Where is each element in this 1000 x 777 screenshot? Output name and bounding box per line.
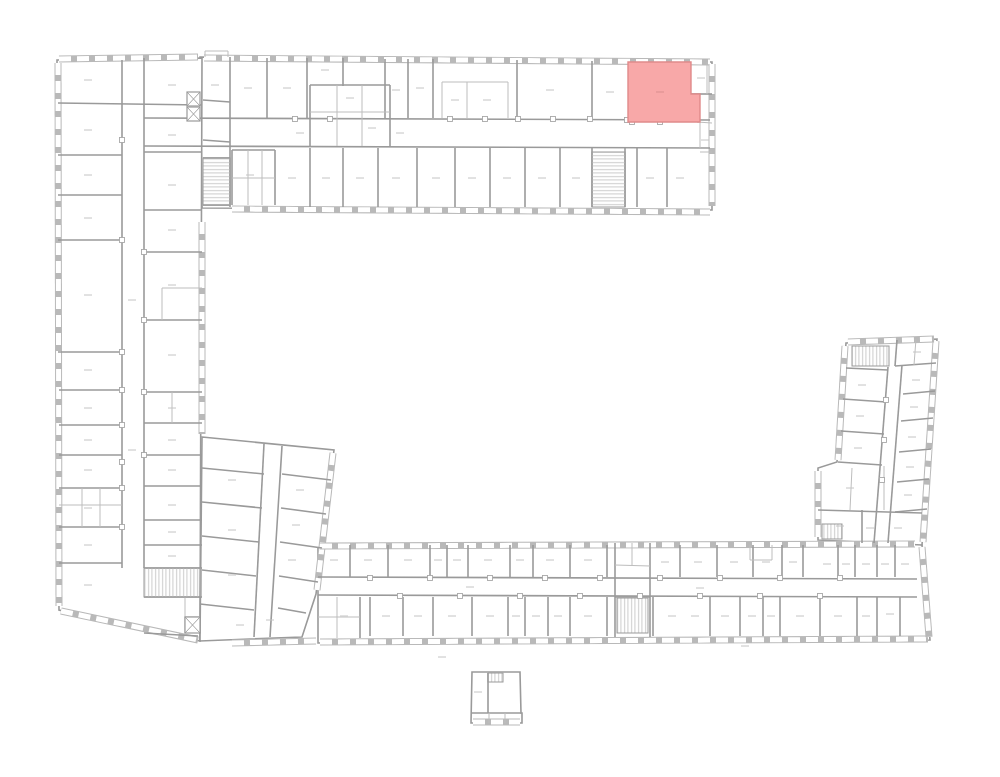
door-marker <box>142 250 147 255</box>
door-marker <box>882 438 887 443</box>
door-marker <box>543 576 548 581</box>
door-marker <box>428 576 433 581</box>
door-marker <box>120 423 125 428</box>
door-marker <box>884 398 889 403</box>
door-marker <box>518 594 523 599</box>
stairwell <box>592 152 625 207</box>
door-marker <box>368 576 373 581</box>
door-marker <box>458 594 463 599</box>
door-marker <box>598 576 603 581</box>
door-marker <box>120 138 125 143</box>
page <box>0 0 1000 777</box>
door-marker <box>718 576 723 581</box>
door-marker <box>758 594 763 599</box>
door-marker <box>658 576 663 581</box>
door-marker <box>120 238 125 243</box>
door-marker <box>120 486 125 491</box>
door-marker <box>638 594 643 599</box>
door-marker <box>120 350 125 355</box>
door-marker <box>483 117 488 122</box>
stairwell <box>617 598 648 633</box>
door-marker <box>142 390 147 395</box>
window-glass-row <box>58 63 59 606</box>
door-marker <box>488 576 493 581</box>
door-marker <box>142 318 147 323</box>
door-marker <box>398 594 403 599</box>
door-marker <box>838 576 843 581</box>
door-marker <box>551 117 556 122</box>
stairwell <box>203 158 230 205</box>
door-marker <box>698 594 703 599</box>
door-marker <box>120 525 125 530</box>
door-marker <box>120 388 125 393</box>
annex-wing <box>200 437 334 641</box>
stairwell <box>852 346 889 366</box>
stairwell <box>488 673 503 682</box>
stairwell <box>144 568 201 597</box>
door-marker <box>142 453 147 458</box>
door-marker <box>293 117 298 122</box>
door-marker <box>448 117 453 122</box>
door-marker <box>578 594 583 599</box>
floor-plan-svg <box>0 0 1000 777</box>
door-marker <box>880 478 885 483</box>
door-marker <box>588 117 593 122</box>
door-marker <box>778 576 783 581</box>
door-marker <box>328 117 333 122</box>
door-marker <box>516 117 521 122</box>
door-marker <box>120 460 125 465</box>
generated-plan <box>57 51 937 723</box>
door-marker <box>818 594 823 599</box>
